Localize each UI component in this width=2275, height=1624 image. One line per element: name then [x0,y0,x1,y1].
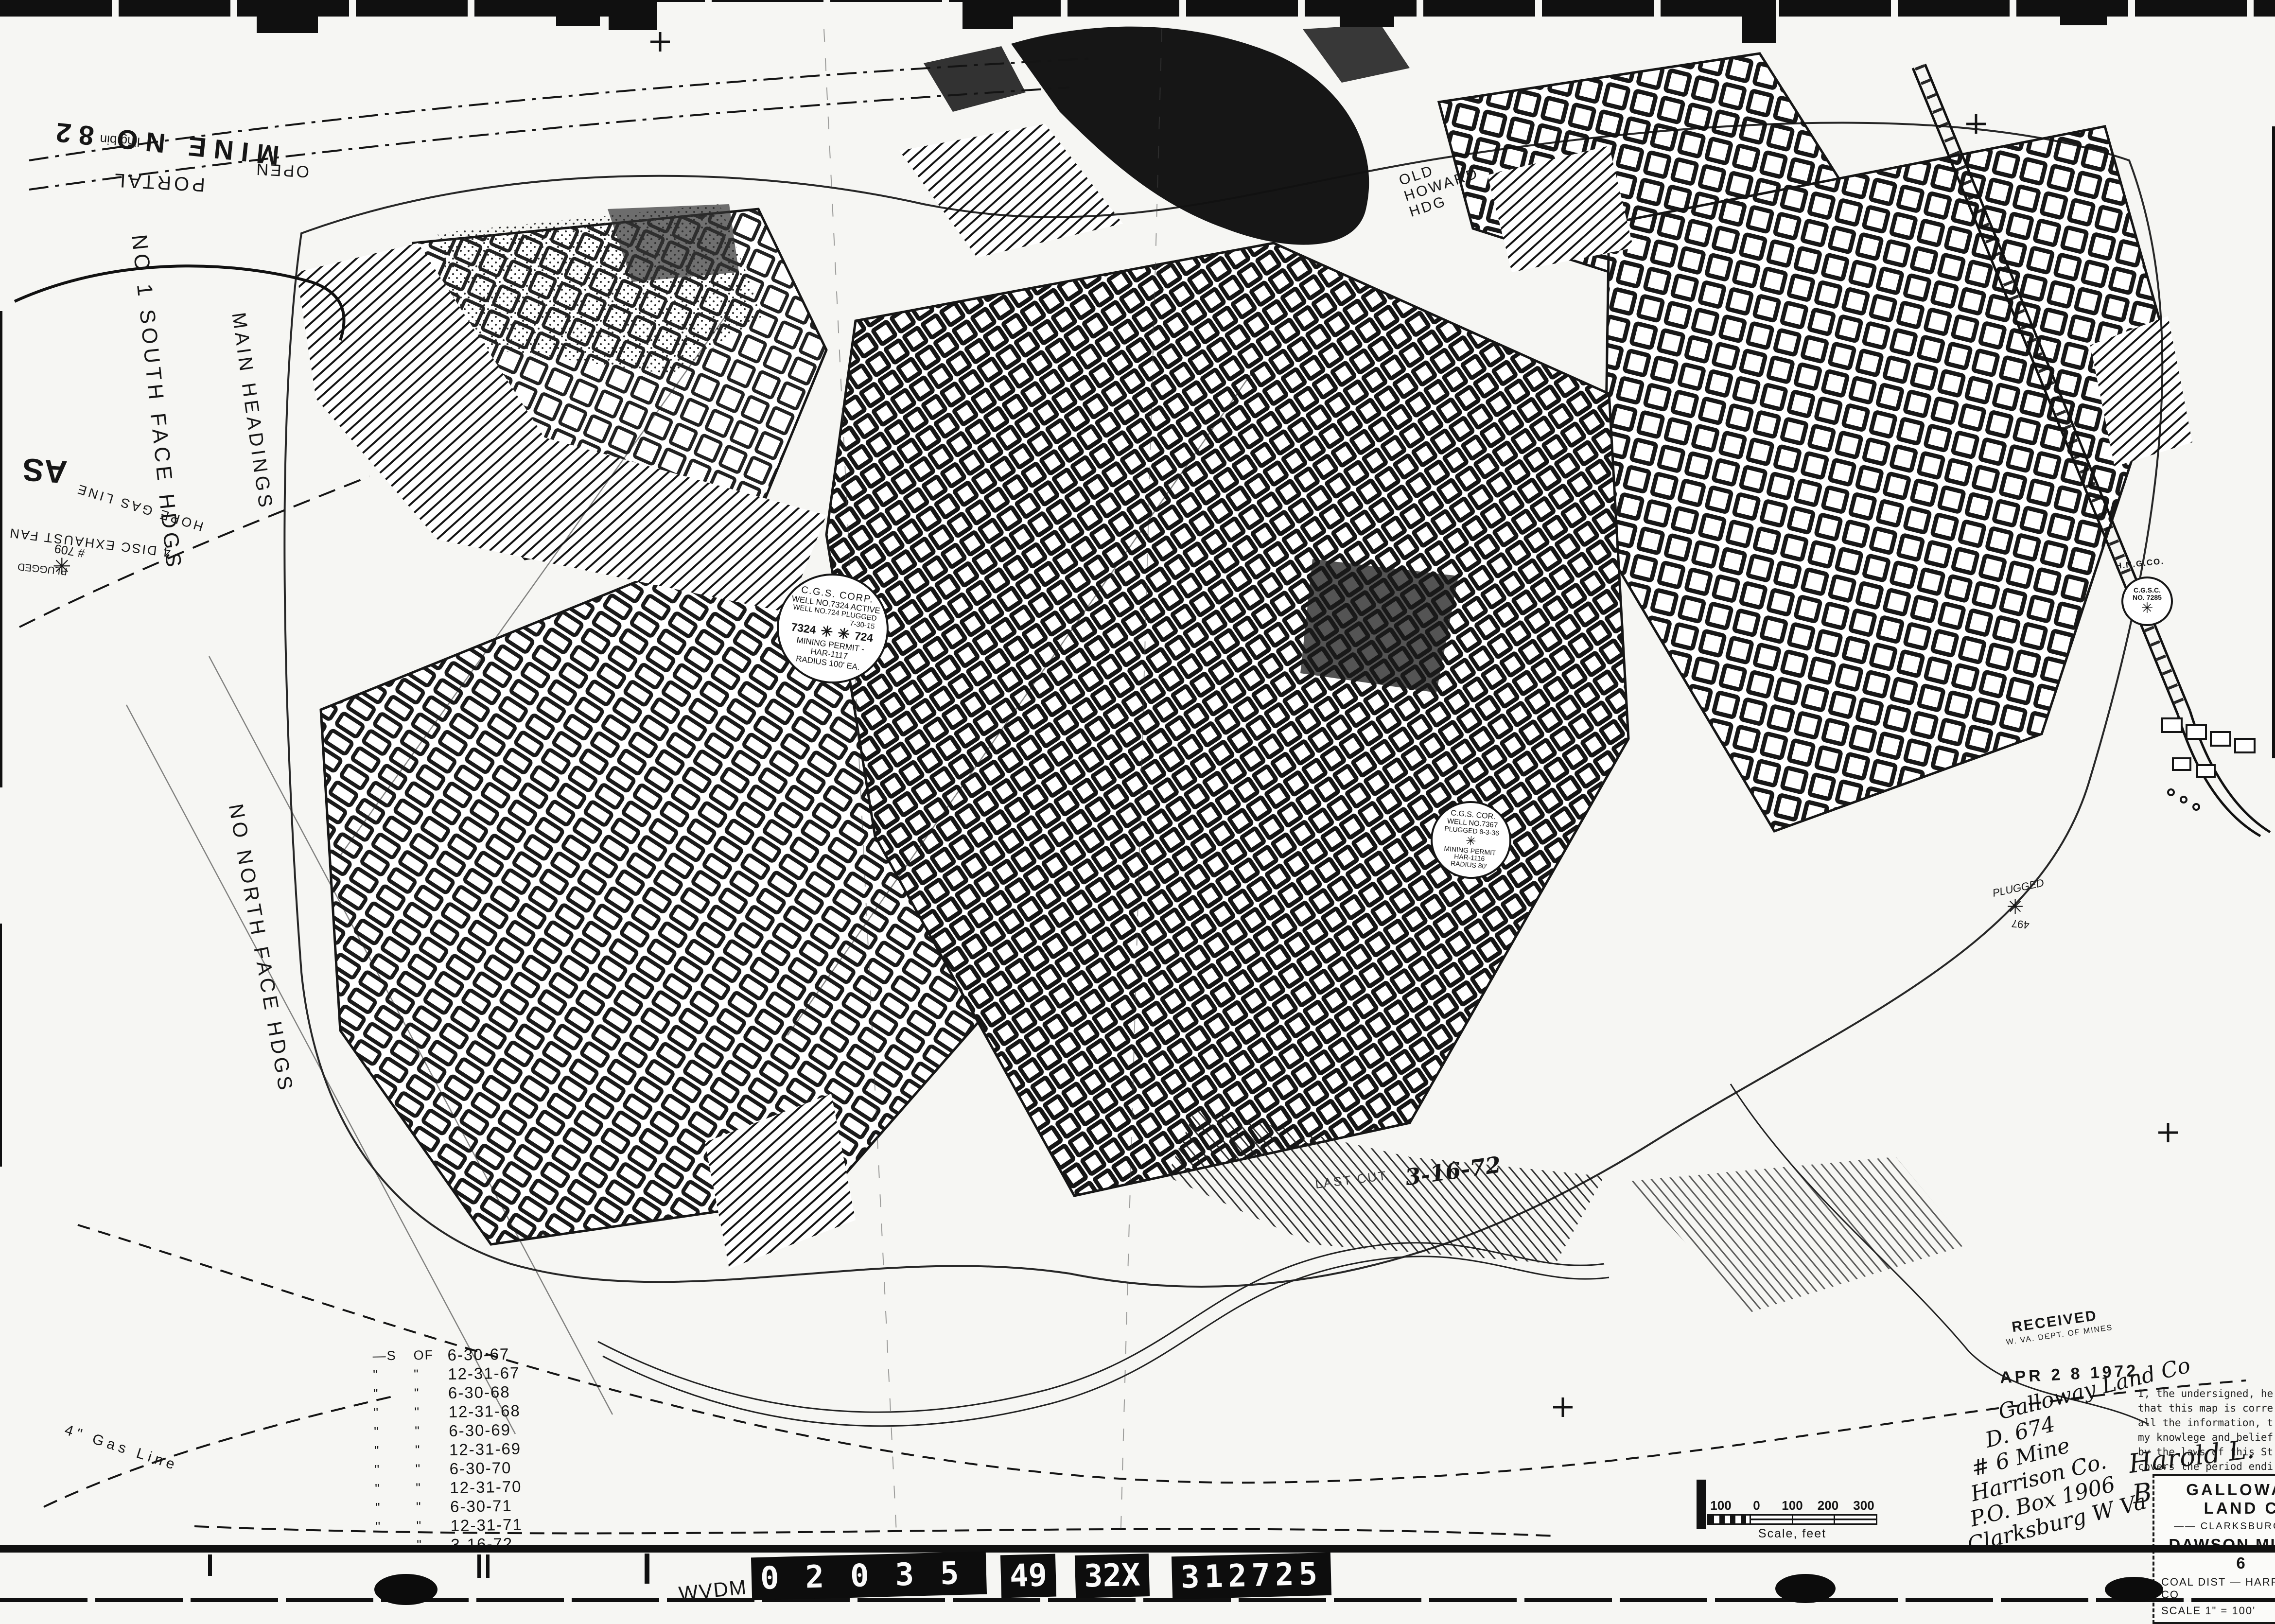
portal-label: PORTAL [112,169,206,195]
film-number-plates: 020354932X312725 [752,1554,1331,1597]
film-edge-mark [1697,1480,1706,1529]
as-of-row: " " 12-31-71 [375,1515,523,1536]
scale-tick-label: 200 [1815,1498,1842,1513]
film-edge-left [0,924,2,1167]
as-of-date: 6-30-67 [447,1345,520,1364]
ditto-mark: " [374,1443,416,1458]
film-strip-gap [657,2,968,17]
well-7285-circle: C.G.S.C. NO. 7285 ✳ [2121,576,2173,626]
scale-segment [1792,1516,1834,1523]
as-of-date: 6-30-69 [449,1420,521,1440]
main-headings-label: MAIN HEADINGS [227,311,277,512]
scale-tick-label: 300 [1850,1498,1877,1513]
scale-caption: Scale, feet [1707,1527,1877,1541]
well-497-number: 497 [2011,917,2030,931]
ditto-mark: " [373,1405,415,1420]
scale-tick-label: 0 [1743,1498,1770,1513]
ditto-mark: " [373,1386,415,1401]
as-of-date: 6-30-71 [450,1496,523,1516]
certification-line: that this map is correct and [2138,1401,2273,1415]
film-tick [486,1554,490,1578]
as-of-date: 12-31-67 [448,1363,520,1383]
film-mark [962,0,1013,29]
ditto-mark: " [374,1462,416,1477]
plugged-well-icon: ✳ [1465,834,1477,848]
film-plate: 312725 [1172,1553,1331,1600]
title-mine-name: DAWSON MINE - 6 [2161,1536,2275,1572]
ditto-mark: OF [413,1347,448,1363]
as-of-row: " " 6-30-71 [375,1496,523,1517]
film-punch-hole [1775,1574,1836,1603]
ditto-mark: " [416,1480,450,1496]
as-of-row: " " 12-31-67 [373,1363,520,1384]
film-strip-bottom-edge [0,1598,2275,1602]
scale-bar-graphic [1707,1514,1877,1525]
ditto-mark: " [415,1423,449,1439]
film-edge-left [0,311,2,787]
film-mark [609,0,657,30]
well-7285-company: C.G.S.C. [2134,587,2161,594]
as-of-date-list: —S OF 6-30-67 " " 12-31-67 " " 6-30-68 "… [372,1344,523,1555]
map-labels-layer: MINE NO 82 PORTAL OPEN ling bin AS NO 1 … [0,0,2275,1602]
as-of-row: —S OF 6-30-67 [372,1344,520,1365]
scale-bar: 1000100200300 Scale, feet [1707,1498,1877,1541]
open-label: OPEN [250,159,310,181]
well-7324-left-number: 7324 [790,621,817,637]
scale-tick-label: 100 [1707,1498,1734,1513]
ash-label: AS [7,450,68,491]
film-tick [645,1554,649,1584]
as-of-date: 6-30-70 [449,1458,522,1478]
as-of-date: 6-30-68 [448,1382,521,1402]
scale-segment [1834,1516,1876,1523]
ditto-mark: " [375,1481,416,1496]
gas-line-4in-label: 4" Gas Line [63,1422,180,1474]
ditto-mark: " [415,1442,450,1458]
ditto-mark: " [415,1461,450,1477]
title-company: GALLOWAY LAND C [2161,1481,2275,1518]
as-of-row: " " 12-31-70 [375,1477,522,1498]
ditto-mark: " [416,1518,451,1534]
as-of-date: 12-31-71 [450,1515,523,1535]
hope-gas-line-label: HOPE GAS LINE [73,481,205,534]
film-mark [2060,0,2107,25]
title-scale: SCALE 1" = 100' [2161,1605,2256,1617]
film-mark [1742,0,1776,43]
film-mark [556,0,600,26]
title-district: COAL DIST — HARRISON CO [2161,1576,2275,1601]
scale-segment [1750,1516,1792,1523]
ditto-mark: " [414,1385,449,1401]
ditto-mark: " [414,1404,449,1420]
last-cut-label: LAST CUT [1314,1168,1388,1192]
ditto-mark: " [375,1500,417,1515]
film-mark [1340,0,1394,27]
film-punch-hole [2105,1577,2163,1602]
film-punch-hole [374,1574,437,1605]
well-7367-circle: C.G.S. COR. WELL NO.7367 PLUGGED 8-3-36 … [1427,798,1514,882]
ditto-mark: " [374,1424,415,1439]
film-plate: 02035 [751,1552,987,1601]
scale-segment [1709,1516,1750,1523]
film-mark [257,0,318,33]
title-location: —— CLARKSBURG W V [2161,1521,2275,1532]
ditto-mark: " [375,1519,417,1534]
well-7285-owner-label: H.N.G.CO. [2115,557,2165,571]
scanned-mine-map: { "film_strip": { "agency": "WVDM", "pla… [0,0,2275,1602]
plugged-well-icon: ✳ [2141,601,2153,616]
film-strip-bottom [0,1545,2275,1553]
old-howard-headings-label: OLD HOWARD HDG [1397,145,1500,221]
as-of-date: 12-31-70 [450,1477,522,1497]
as-of-row: " " 12-31-69 [374,1439,522,1460]
plugged-well-497-icon: ✳ [2007,897,2024,917]
last-cut-date: 3-16-72 [1403,1151,1503,1190]
film-strip-top [0,0,2275,17]
well-7324-circle: C.G.S. CORP. WELL NO.7324 ACTIVE WELL NO… [770,566,895,691]
film-plate: 32X [1075,1554,1150,1598]
film-tick [208,1554,212,1576]
ditto-mark: " [416,1499,451,1515]
as-of-row: " " 12-31-68 [373,1401,521,1422]
as-of-row: " " 6-30-69 [374,1420,521,1441]
well-7324-right-number: 724 [854,630,874,645]
exhaust-fan-label: 4 DISC EXHAUST FAN [5,524,171,559]
film-edge-right [2272,126,2275,758]
plugged-well-icon: ✳ [837,627,851,643]
ditto-mark: —S [372,1348,414,1363]
certification-line: all the information, to the [2138,1415,2273,1430]
ditto-mark: " [373,1367,414,1382]
north-face-headings-label: NO NORTH FACE HDGS [224,802,298,1095]
certification-line: I, the undersigned, hereby ce [2138,1386,2273,1401]
as-of-row: " " 6-30-70 [374,1458,522,1479]
ditto-mark: " [414,1366,448,1382]
plugged-well-icon: ✳ [820,624,834,640]
scale-tick-label: 100 [1779,1498,1806,1513]
film-tick [477,1554,481,1578]
as-of-date: 12-31-69 [449,1439,522,1459]
as-of-row: " " 6-30-68 [373,1382,521,1403]
film-plate: 49 [1000,1554,1056,1598]
as-of-date: 12-31-68 [448,1401,521,1421]
